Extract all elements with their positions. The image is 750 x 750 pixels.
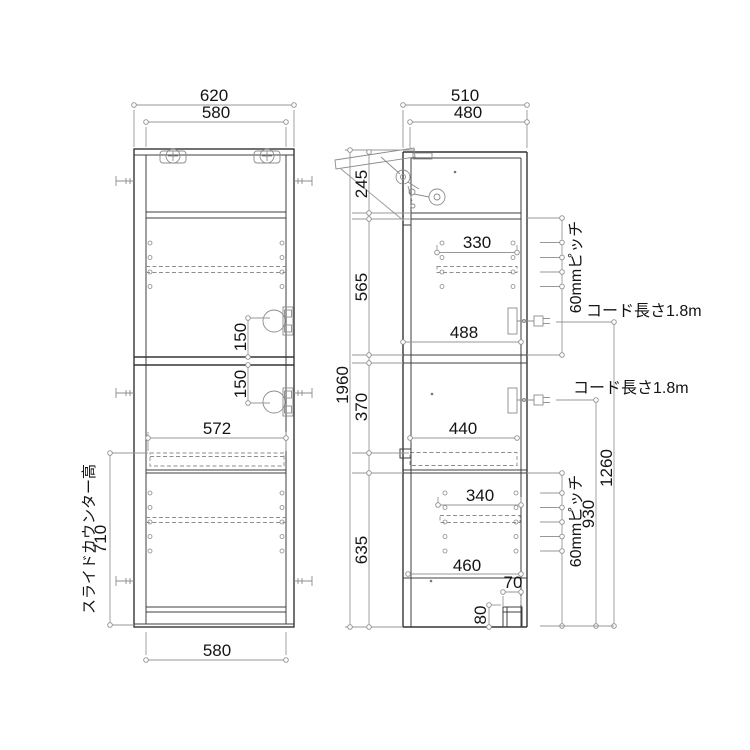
dim-base-inset: 70 [501,573,524,606]
dim-counter-depth: 440 [408,419,520,440]
cabinet-dimension-drawing: 620 580 150 150 572 [0,0,750,750]
dim-label-480: 480 [454,103,482,122]
dim-pitch-upper: 60mmピッチ [527,216,585,358]
dim-lower-shelf-span: 340 [436,486,524,507]
dim-cord-upper: コード長さ1.8m 1260 [556,302,702,628]
shelf-pin-holes-upper [146,241,286,289]
side-view: 510 480 1960 [333,86,702,629]
dim-label-70: 70 [504,573,523,592]
dim-label-pitch-upper: 60mmピッチ [568,221,585,313]
dim-label-330: 330 [463,233,491,252]
dim-upper-shelf-span: 330 [435,233,520,255]
dim-label-930: 930 [579,500,598,528]
wall-bracket-icon [116,176,312,586]
dim-label-370: 370 [352,393,371,421]
dim-label-580-bottom: 580 [203,641,231,660]
outlet-icon [263,388,293,416]
hinge-icon [160,149,186,163]
dim-counter-height: スライドカウンター高 710 [81,451,148,628]
dim-label-565: 565 [352,273,371,301]
dim-section-heights: 245 565 370 635 [352,150,411,630]
front-view: 620 580 150 150 572 [81,86,312,662]
dim-label-572: 572 [203,419,231,438]
dim-label-80: 80 [471,606,490,625]
front-cabinet-outline [134,149,294,627]
dim-counter-width: 572 [146,419,289,451]
dim-label-635: 635 [352,536,371,564]
outlet-icon [263,307,293,335]
dim-pitch-lower: 60mmピッチ [527,471,585,629]
dim-upper-interior-depth: 488 [401,323,524,344]
dim-base-height: 80 [471,603,501,630]
dim-outlet-lower-gap: 150 [231,363,270,406]
dim-label-460: 460 [453,556,481,575]
dim-label-710: 710 [91,525,110,553]
hinge-icon [254,149,280,163]
cord-note-upper: コード長さ1.8m [586,302,702,320]
dim-label-245: 245 [352,170,371,198]
dim-label-150-upper: 150 [231,323,250,351]
kick-base [503,607,522,627]
slide-counter [150,453,284,466]
dim-outlet-upper-gap: 150 [231,316,270,360]
dim-label-1960: 1960 [333,366,352,404]
dim-label-340: 340 [466,486,494,505]
shelf-pin-holes-lower [146,491,286,553]
dim-side-depth-inner: 480 [408,103,530,148]
outlet-plug-icon [508,388,550,413]
dim-label-488: 488 [450,323,478,342]
dim-label-580-top: 580 [202,103,230,122]
slide-counter [400,449,517,466]
dim-front-width-bottom: 580 [144,632,289,662]
dim-label-1260: 1260 [597,449,616,487]
dim-label-440: 440 [449,419,477,438]
dim-label-150-lower: 150 [231,370,250,398]
outlet-plug-icon [508,308,550,334]
cord-note-lower: コード長さ1.8m [573,379,689,397]
dim-front-width-inner: 580 [144,103,289,147]
drawing-canvas: 620 580 150 150 572 [0,0,750,750]
